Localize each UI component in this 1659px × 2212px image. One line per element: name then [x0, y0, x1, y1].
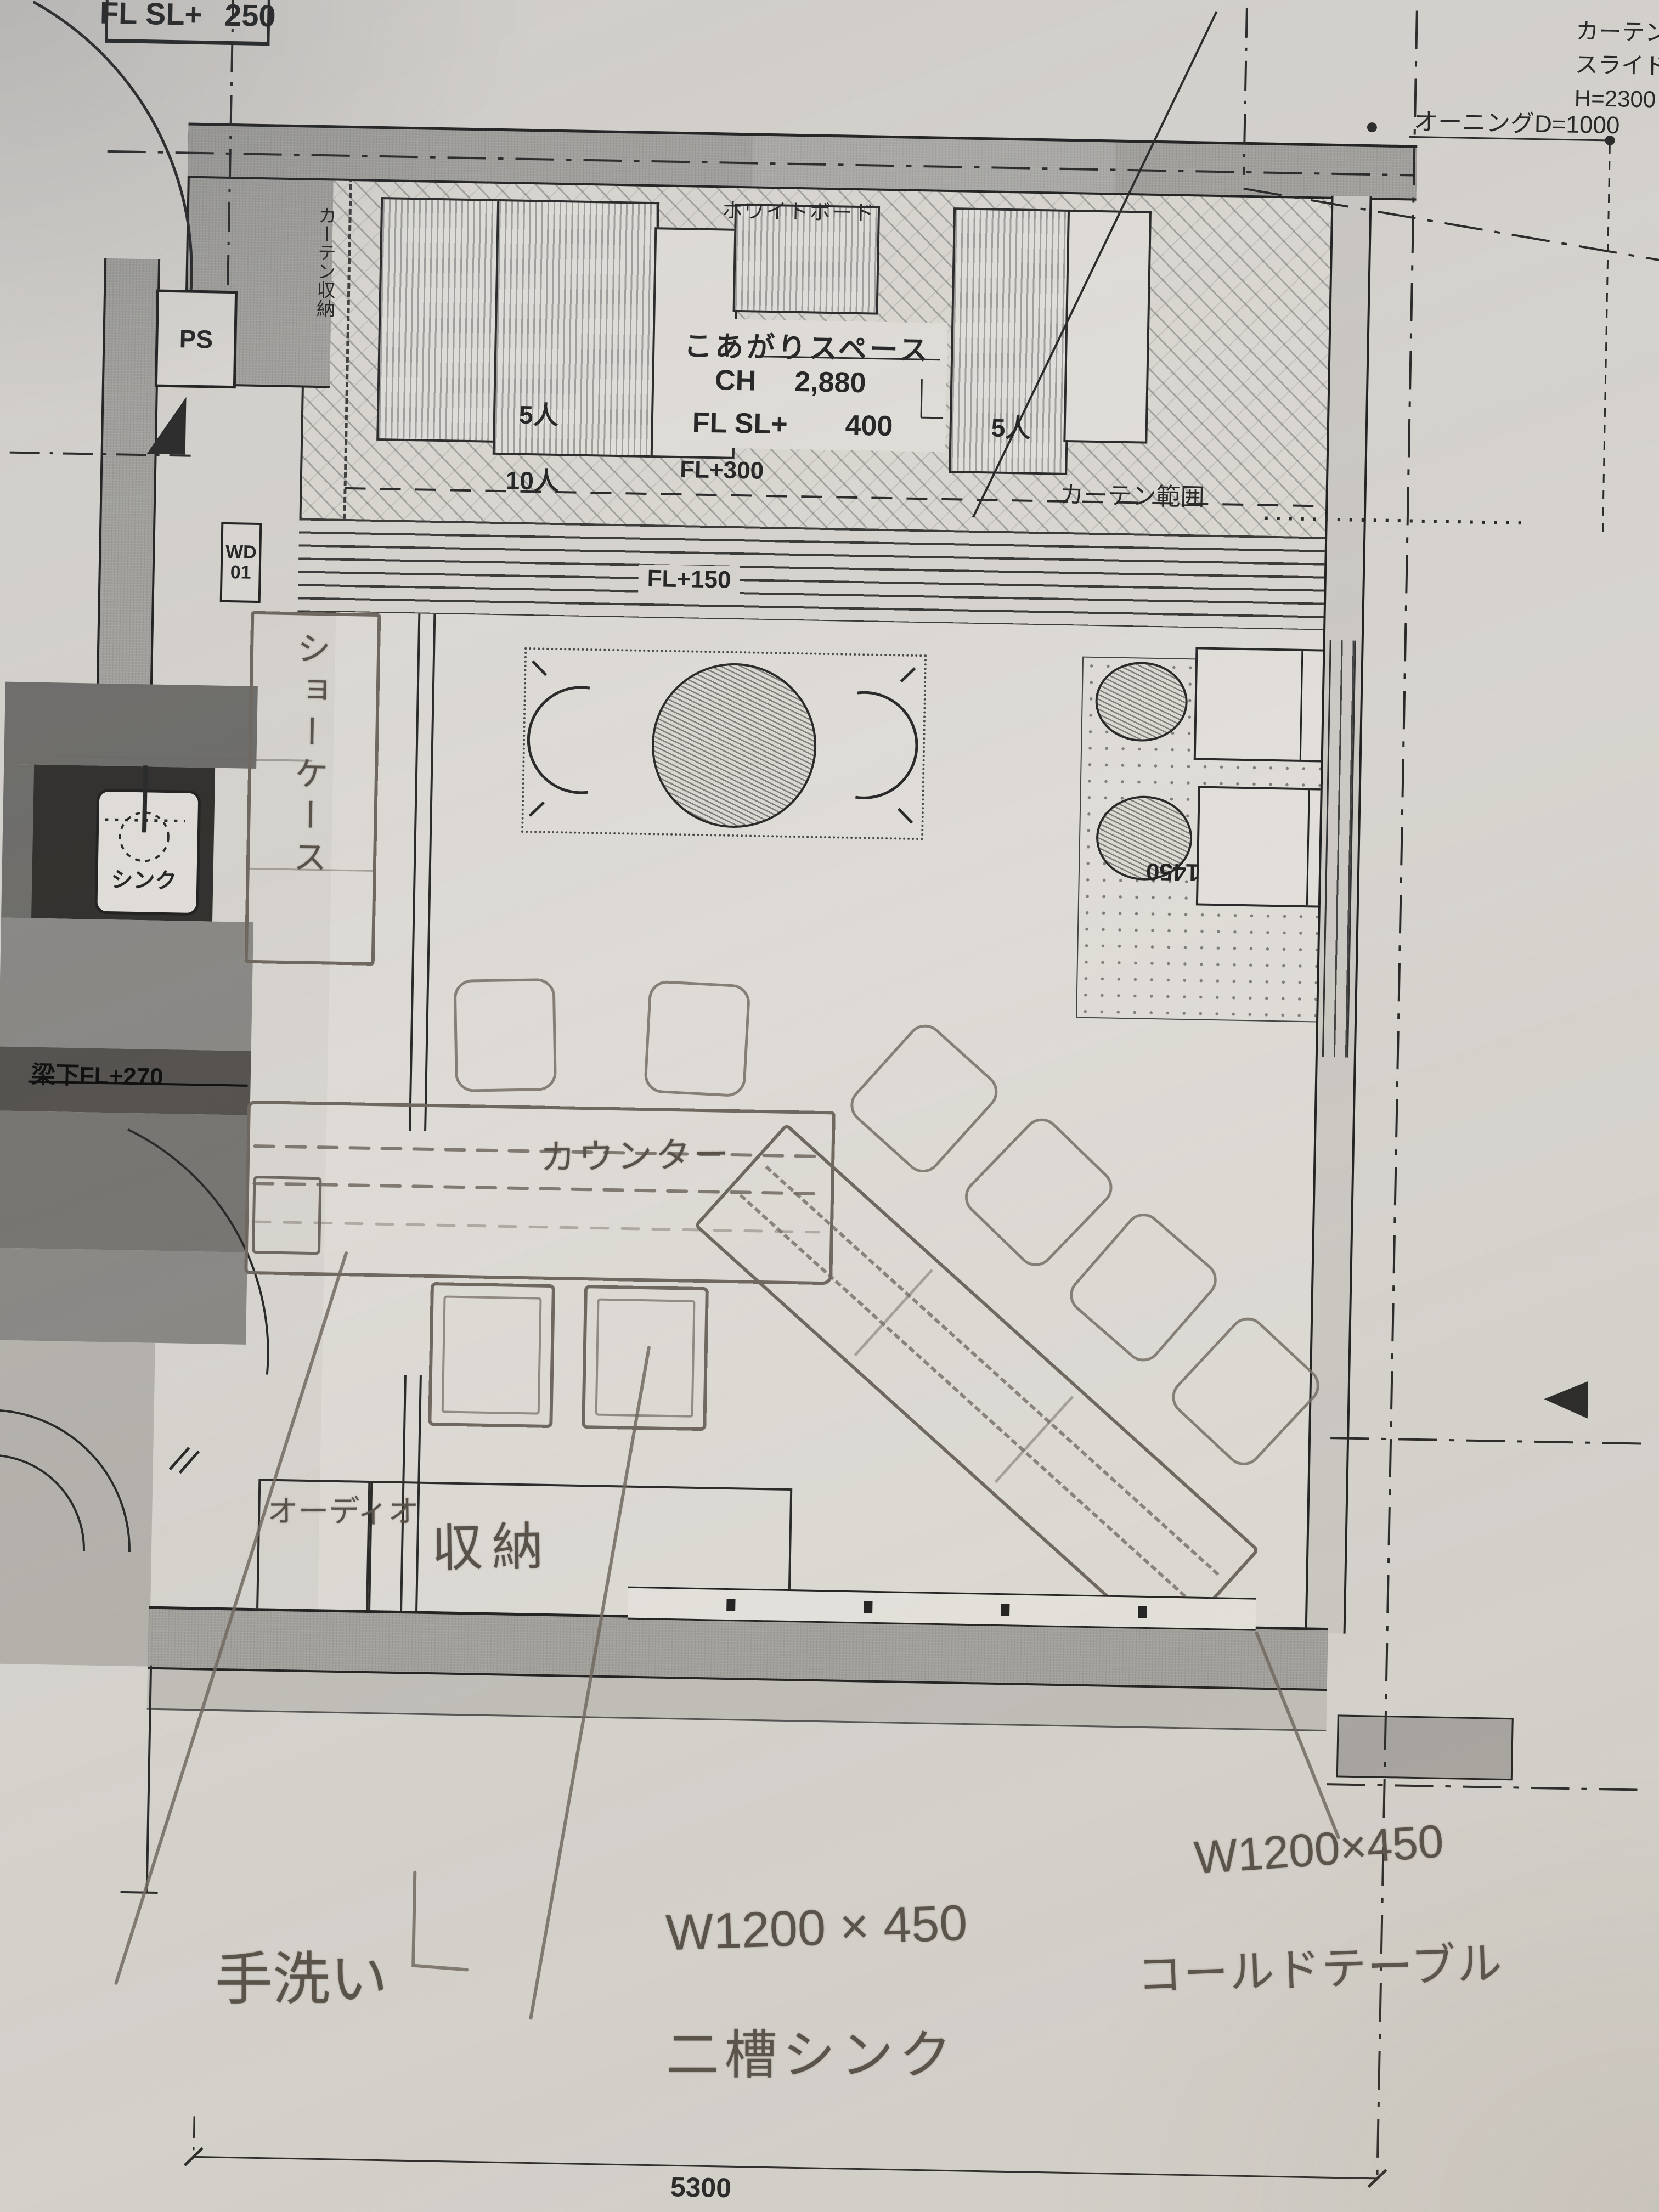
showcase-outline: ショーケース: [245, 611, 381, 966]
leader-two-bowl-sink: [531, 1346, 648, 2020]
audio-label: オーディオ: [267, 1487, 419, 1531]
floor-plan-photo: FL SL+ 250 PS カーテン収納 ホワイトボード こあがりスペース CH…: [0, 0, 1659, 2212]
counter-chair: [454, 978, 557, 1092]
sink-bowl-inner: [595, 1299, 696, 1418]
two-bowl-sink-dim: W1200 × 450: [665, 1894, 968, 1962]
sink-bowl-1: [428, 1282, 555, 1428]
two-bowl-sink-label: 二槽シンク: [666, 2012, 957, 2089]
plan-sheet: FL SL+ 250 PS カーテン収納 ホワイトボード こあがりスペース CH…: [0, 0, 1659, 2212]
sink-bowl-inner: [442, 1295, 542, 1414]
sink-bowl-2: [582, 1285, 709, 1431]
hand-wash-bracket: [413, 1872, 469, 1970]
hand-wash-label: 手洗い: [215, 1933, 388, 2016]
counter-label: カウンター: [540, 1126, 732, 1180]
storage-label: 収納: [431, 1505, 552, 1582]
counter-main: [244, 1101, 836, 1285]
cold-table-label: コールドテーブル: [1136, 1927, 1504, 2005]
leader-cold-table: [1253, 1633, 1342, 1838]
hand-wash-sink-outline: [252, 1176, 322, 1255]
counter-chair: [644, 980, 751, 1098]
showcase-label: ショーケース: [281, 630, 335, 882]
leader-hand-wash: [116, 1249, 346, 1987]
